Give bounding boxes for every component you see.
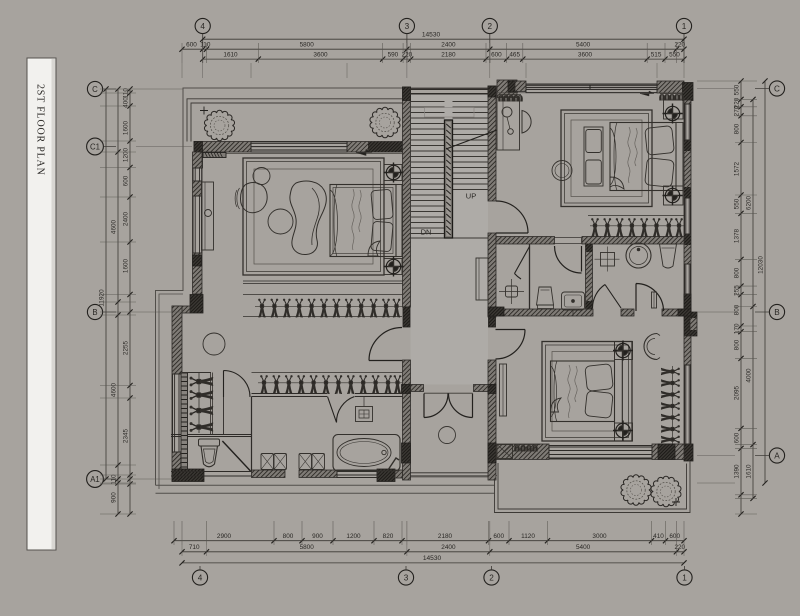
svg-text:6200: 6200 bbox=[745, 195, 752, 210]
svg-text:550: 550 bbox=[733, 198, 740, 209]
svg-text:A1: A1 bbox=[90, 475, 100, 484]
svg-text:820: 820 bbox=[383, 533, 394, 540]
svg-text:600: 600 bbox=[493, 533, 504, 540]
svg-text:14530: 14530 bbox=[423, 555, 442, 562]
svg-text:2345: 2345 bbox=[122, 428, 129, 443]
svg-text:2095: 2095 bbox=[733, 385, 740, 400]
svg-text:14530: 14530 bbox=[422, 32, 441, 39]
svg-text:11920: 11920 bbox=[98, 289, 105, 307]
svg-text:3: 3 bbox=[404, 573, 409, 582]
svg-text:2400: 2400 bbox=[441, 42, 456, 49]
svg-text:1200: 1200 bbox=[346, 533, 361, 540]
svg-text:2400: 2400 bbox=[122, 211, 129, 226]
svg-text:600: 600 bbox=[669, 533, 680, 540]
svg-text:2: 2 bbox=[489, 573, 494, 582]
svg-text:4600: 4600 bbox=[110, 219, 117, 234]
svg-text:800: 800 bbox=[733, 123, 740, 134]
svg-text:C: C bbox=[92, 85, 98, 94]
svg-text:4600: 4600 bbox=[110, 382, 117, 397]
svg-text:600: 600 bbox=[733, 432, 740, 443]
svg-text:2: 2 bbox=[488, 22, 493, 31]
svg-text:900: 900 bbox=[312, 533, 323, 540]
svg-text:1572: 1572 bbox=[733, 161, 740, 176]
svg-text:3600: 3600 bbox=[313, 52, 328, 59]
svg-text:4: 4 bbox=[200, 22, 205, 31]
svg-text:800: 800 bbox=[733, 304, 740, 315]
svg-text:1200: 1200 bbox=[122, 147, 129, 162]
svg-text:2900: 2900 bbox=[217, 533, 232, 540]
svg-text:4000: 4000 bbox=[745, 368, 752, 383]
svg-text:900: 900 bbox=[110, 492, 117, 503]
svg-text:1390: 1390 bbox=[733, 464, 740, 479]
svg-text:1378: 1378 bbox=[733, 228, 740, 243]
svg-text:110: 110 bbox=[200, 42, 211, 49]
svg-text:1120: 1120 bbox=[521, 533, 535, 540]
svg-text:5400: 5400 bbox=[576, 42, 591, 49]
svg-text:800: 800 bbox=[733, 267, 740, 278]
svg-text:3: 3 bbox=[405, 22, 410, 31]
svg-text:2255: 2255 bbox=[122, 340, 129, 355]
svg-text:B: B bbox=[774, 308, 780, 317]
svg-text:12030: 12030 bbox=[757, 256, 764, 274]
svg-text:550: 550 bbox=[669, 52, 680, 59]
svg-text:3600: 3600 bbox=[578, 52, 593, 59]
svg-text:B: B bbox=[92, 308, 97, 317]
svg-text:1610: 1610 bbox=[745, 464, 752, 479]
svg-text:1: 1 bbox=[682, 573, 687, 582]
svg-text:3000: 3000 bbox=[592, 533, 607, 540]
svg-text:600: 600 bbox=[491, 52, 502, 59]
svg-text:600: 600 bbox=[122, 175, 129, 186]
svg-text:5800: 5800 bbox=[300, 544, 315, 551]
svg-text:1600: 1600 bbox=[122, 258, 129, 273]
svg-text:A: A bbox=[774, 451, 780, 460]
svg-text:465: 465 bbox=[509, 52, 520, 59]
svg-text:600: 600 bbox=[186, 42, 197, 49]
svg-text:2400: 2400 bbox=[441, 544, 456, 551]
svg-text:590: 590 bbox=[388, 52, 399, 59]
svg-text:C1: C1 bbox=[90, 142, 100, 151]
svg-text:800: 800 bbox=[733, 339, 740, 350]
svg-text:1600: 1600 bbox=[122, 120, 129, 135]
svg-text:800: 800 bbox=[283, 533, 294, 540]
svg-text:4: 4 bbox=[198, 573, 203, 582]
svg-text:DN: DN bbox=[421, 228, 432, 237]
svg-text:UP: UP bbox=[466, 192, 476, 201]
svg-text:5800: 5800 bbox=[300, 42, 315, 49]
svg-text:550: 550 bbox=[733, 84, 740, 95]
svg-text:C: C bbox=[774, 84, 780, 93]
svg-text:2180: 2180 bbox=[441, 52, 456, 59]
svg-text:2180: 2180 bbox=[438, 533, 453, 540]
svg-text:1610: 1610 bbox=[223, 52, 238, 59]
svg-text:710: 710 bbox=[189, 544, 200, 551]
svg-text:170: 170 bbox=[733, 323, 740, 334]
svg-text:515: 515 bbox=[651, 52, 662, 59]
svg-text:410: 410 bbox=[653, 533, 664, 540]
svg-text:5400: 5400 bbox=[576, 544, 591, 551]
svg-text:2ST FLOOR PLAN: 2ST FLOOR PLAN bbox=[35, 84, 46, 176]
svg-text:1: 1 bbox=[682, 22, 687, 31]
